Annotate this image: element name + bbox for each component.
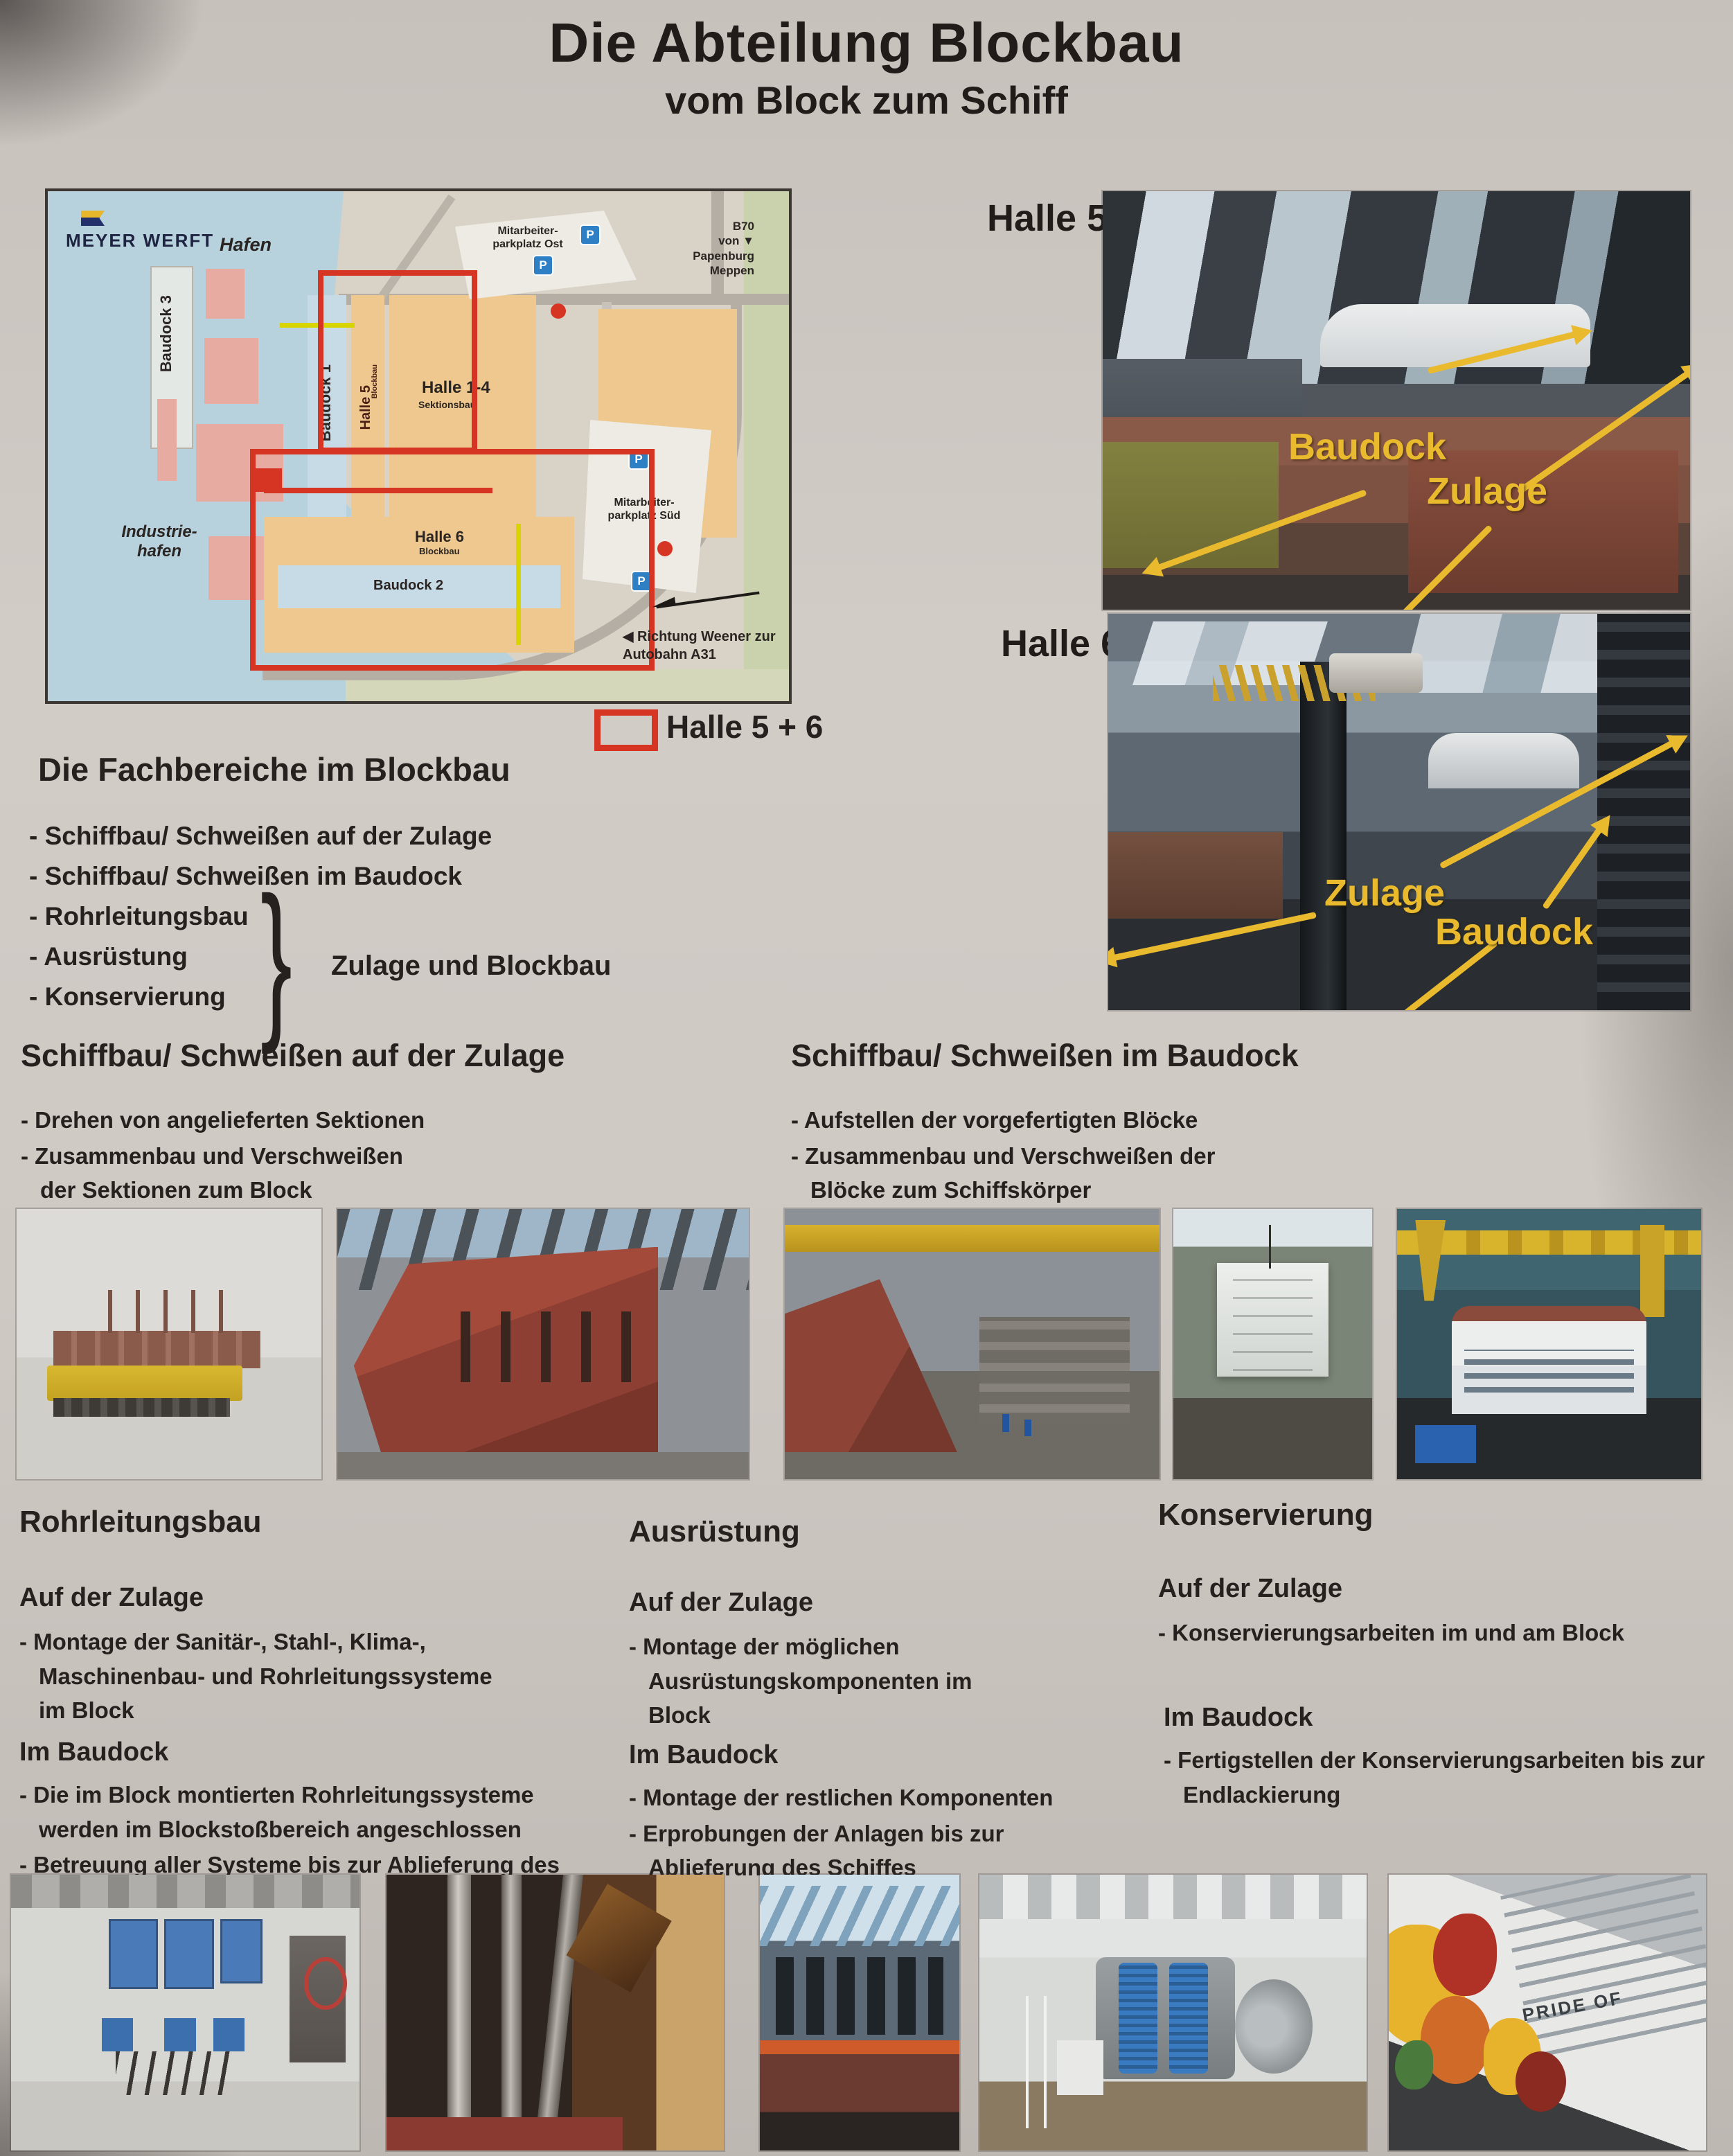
legend-halle56-swatch bbox=[594, 709, 658, 751]
b70-line: Meppen bbox=[671, 263, 754, 278]
map-label-b70: B70 von ▼ Papenburg Meppen bbox=[671, 219, 754, 278]
konservierung-heading: Konservierung bbox=[1158, 1498, 1374, 1532]
map-building bbox=[204, 338, 258, 404]
photo-cruise-bow: PRIDE OF bbox=[1389, 1875, 1706, 2150]
map-label-hafen: Hafen bbox=[220, 234, 272, 256]
rohr-zulage-bullets: - Montage der Sanitär-, Stahl-, Klima-, … bbox=[19, 1625, 504, 1729]
kons-baudock-subheading: Im Baudock bbox=[1164, 1703, 1313, 1733]
brace-glyph: } bbox=[260, 878, 292, 1038]
map-red-outline-halle6 bbox=[250, 449, 655, 671]
halle6-label: Halle 6 bbox=[1001, 622, 1121, 665]
parking-icon: P bbox=[533, 255, 553, 276]
b70-line: B70 bbox=[671, 219, 754, 233]
arrow-zulage-left bbox=[1112, 912, 1317, 961]
rohr-zulage-subheading: Auf der Zulage bbox=[19, 1583, 204, 1613]
baudock-section-bullets: - Aufstellen der vorgefertigten Blöcke -… bbox=[791, 1103, 1220, 1209]
ausr-baudock-subheading: Im Baudock bbox=[629, 1740, 778, 1770]
bullet: - Zusammenbau und Verschweißen der Sekti… bbox=[21, 1139, 443, 1208]
brace-label: Zulage und Blockbau bbox=[331, 951, 611, 982]
map-label-industriehafen: Industrie- hafen bbox=[114, 522, 204, 560]
bullet: - Drehen von angelieferten Sektionen bbox=[21, 1103, 443, 1138]
bullet: - Montage der möglichen Ausrüstungskompo… bbox=[629, 1629, 1024, 1733]
map-label-richtung: ◀ Richtung Weener zur Autobahn A31 bbox=[623, 628, 789, 664]
kons-zulage-bullets: - Konservierungsarbeiten im und am Block bbox=[1158, 1616, 1705, 1652]
ausr-zulage-bullets: - Montage der möglichen Ausrüstungskompo… bbox=[629, 1629, 1024, 1734]
map-label-parkplatz-ost: Mitarbeiter- parkplatz Ost bbox=[483, 224, 573, 251]
halle5-baudock-annotation: Baudock bbox=[1288, 425, 1446, 468]
map-building bbox=[206, 269, 245, 319]
map-red-line bbox=[264, 488, 492, 493]
zulage-section-bullets: - Drehen von angelieferten Sektionen - Z… bbox=[21, 1103, 443, 1209]
meyer-werft-flag-icon bbox=[81, 211, 105, 226]
left-arrow-icon: ◀ bbox=[623, 629, 633, 644]
photo-baudock-bow bbox=[785, 1209, 1159, 1479]
b70-line: von bbox=[718, 234, 739, 247]
bullet: - Aufstellen der vorgefertigten Blöcke bbox=[791, 1103, 1220, 1138]
ausr-baudock-bullets: - Montage der restlichen Komponenten - E… bbox=[629, 1781, 1072, 1886]
map-label-baudock3: Baudock 3 bbox=[157, 295, 175, 372]
photo-pipes bbox=[386, 1875, 724, 2150]
kons-zulage-subheading: Auf der Zulage bbox=[1158, 1574, 1342, 1604]
bullet: - Montage der restlichen Komponenten bbox=[629, 1781, 1072, 1815]
halle5-photo: Baudock Zulage bbox=[1103, 191, 1690, 610]
zulage-section-heading: Schiffbau/ Schweißen auf der Zulage bbox=[21, 1038, 565, 1074]
parking-icon: P bbox=[580, 224, 601, 245]
photo-superstructure-dock bbox=[1397, 1209, 1701, 1479]
halle6-baudock-annotation: Baudock bbox=[1435, 910, 1593, 953]
halle5-zulage-annotation: Zulage bbox=[1427, 470, 1547, 513]
list-item: - Schiffbau/ Schweißen auf der Zulage bbox=[29, 816, 492, 856]
map-red-gate bbox=[250, 468, 282, 492]
bullet: - Montage der Sanitär-, Stahl-, Klima-, … bbox=[19, 1625, 504, 1728]
direction-marker-icon: ▼ bbox=[743, 234, 754, 247]
site-map: MEYER WERFT Hafen Industrie- hafen Baudo… bbox=[45, 188, 792, 704]
photo-winch-room bbox=[979, 1875, 1367, 2150]
meyer-werft-logo: MEYER WERFT bbox=[66, 230, 214, 251]
rohr-baudock-subheading: Im Baudock bbox=[19, 1738, 168, 1767]
legend-halle56-label: Halle 5 + 6 bbox=[666, 708, 823, 745]
bullet: - Zusammenbau und Verschweißen der Blöck… bbox=[791, 1139, 1220, 1208]
photo-deck-block bbox=[760, 1875, 959, 2150]
page-title: Die Abteilung Blockbau bbox=[0, 11, 1733, 75]
kons-baudock-bullets: - Fertigstellen der Konservierungsarbeit… bbox=[1164, 1743, 1711, 1813]
bullet: - Konservierungsarbeiten im und am Block bbox=[1158, 1616, 1705, 1650]
map-red-outline-halle5 bbox=[318, 270, 477, 453]
arrow-baudock-up bbox=[1542, 827, 1603, 910]
map-red-dot bbox=[657, 541, 673, 556]
halle6-photo: Zulage Baudock bbox=[1108, 614, 1690, 1010]
halle5-label: Halle 5 bbox=[987, 197, 1108, 240]
page-subtitle: vom Block zum Schiff bbox=[0, 78, 1733, 123]
ausr-zulage-subheading: Auf der Zulage bbox=[629, 1588, 813, 1618]
halle6-zulage-annotation: Zulage bbox=[1324, 872, 1445, 914]
fachbereiche-heading: Die Fachbereiche im Blockbau bbox=[38, 750, 510, 788]
baudock-section-heading: Schiffbau/ Schweißen im Baudock bbox=[791, 1038, 1299, 1074]
bullet: - Fertigstellen der Konservierungsarbeit… bbox=[1164, 1743, 1711, 1812]
rohrleitungsbau-heading: Rohrleitungsbau bbox=[19, 1505, 262, 1539]
ausruestung-heading: Ausrüstung bbox=[629, 1514, 800, 1549]
map-red-dot bbox=[551, 303, 566, 319]
photo-block-lift bbox=[1173, 1209, 1372, 1479]
map-building bbox=[157, 399, 177, 481]
photo-engine-room bbox=[11, 1875, 359, 2150]
b70-line: Papenburg bbox=[671, 249, 754, 263]
photo-hull-section bbox=[337, 1209, 749, 1479]
poster: Die Abteilung Blockbau vom Block zum Sch… bbox=[0, 0, 1733, 2156]
richtung-text: Richtung Weener zur Autobahn A31 bbox=[623, 629, 776, 662]
bullet: - Die im Block montierten Rohrleitungssy… bbox=[19, 1778, 567, 1846]
photo-transporter bbox=[17, 1209, 321, 1479]
